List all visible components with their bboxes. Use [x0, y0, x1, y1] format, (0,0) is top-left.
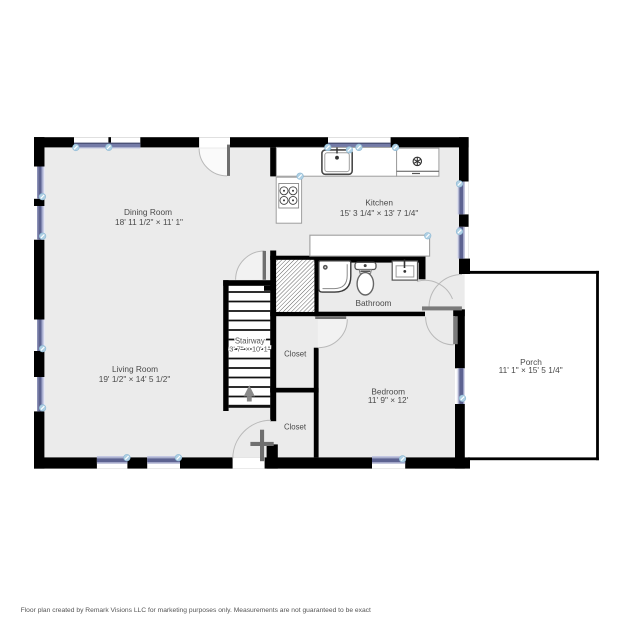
svg-text:15' 3 1/4" × 13' 7 1/4": 15' 3 1/4" × 13' 7 1/4": [340, 208, 419, 218]
svg-text:3' 7" × 10' 1": 3' 7" × 10' 1": [229, 345, 271, 354]
svg-text:19' 1/2" × 14' 5 1/2": 19' 1/2" × 14' 5 1/2": [99, 374, 171, 384]
svg-text:18' 11 1/2" × 11' 1": 18' 11 1/2" × 11' 1": [115, 217, 183, 227]
svg-text:11' 9" × 12': 11' 9" × 12': [368, 395, 409, 405]
svg-text:Dining Room: Dining Room: [124, 207, 172, 217]
svg-text:Closet: Closet: [284, 350, 307, 359]
svg-text:Living Room: Living Room: [112, 364, 158, 374]
svg-text:Bathroom: Bathroom: [356, 298, 392, 308]
svg-text:11' 1" × 15' 5 1/4": 11' 1" × 15' 5 1/4": [499, 365, 563, 375]
svg-text:Kitchen: Kitchen: [365, 197, 393, 207]
svg-text:Closet: Closet: [284, 423, 307, 432]
svg-text:Floor plan created by Remark V: Floor plan created by Remark Visions LLC…: [21, 607, 371, 614]
